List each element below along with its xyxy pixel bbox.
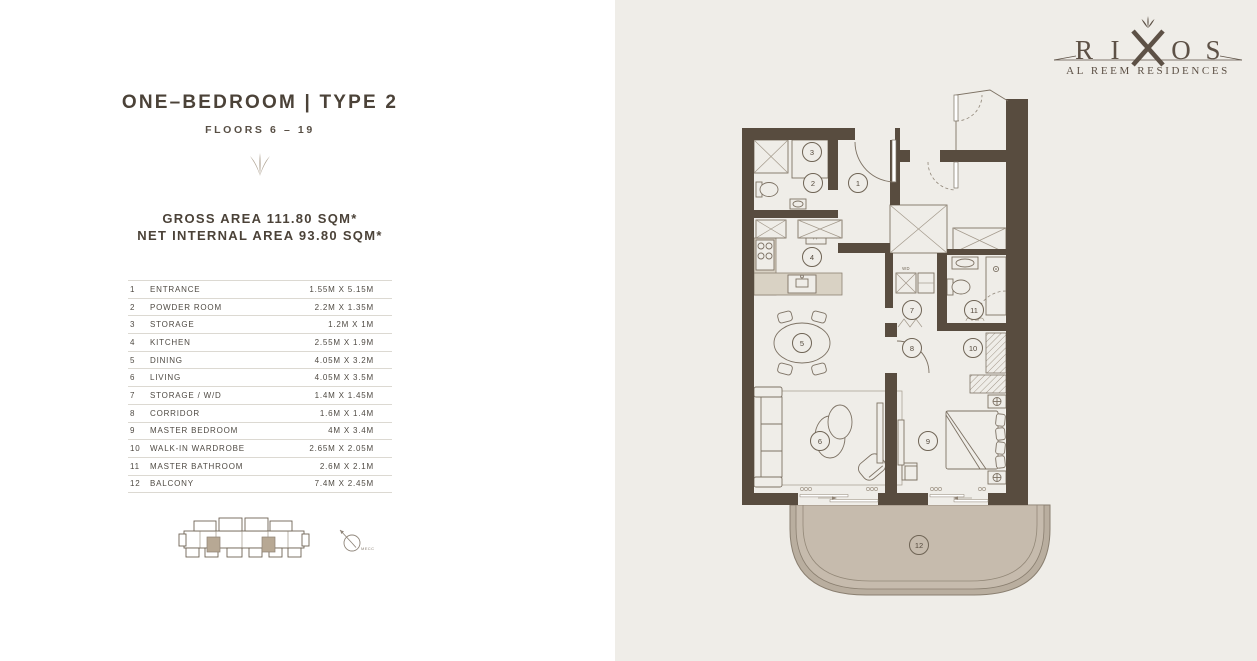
table-row: 2POWDER ROOM2.2M X 1.35M bbox=[128, 298, 392, 316]
table-row: 11MASTER BATHROOM2.6M X 2.1M bbox=[128, 457, 392, 475]
kitchen: FF bbox=[754, 231, 842, 295]
page: { "brand": { "letters": ["R", "I", "O", … bbox=[0, 0, 1257, 661]
compass-icon: MECCA bbox=[332, 524, 374, 558]
svg-text:2: 2 bbox=[811, 179, 815, 188]
room-name: BALCONY bbox=[150, 479, 315, 488]
table-row: 12BALCONY7.4M X 2.45M bbox=[128, 475, 392, 494]
bed bbox=[946, 411, 998, 469]
powder-sink bbox=[790, 199, 806, 209]
lobby bbox=[928, 90, 1008, 190]
room-no: 9 bbox=[128, 426, 150, 435]
sofa bbox=[754, 387, 782, 487]
svg-text:R: R bbox=[1075, 35, 1093, 65]
table-row: 3STORAGE1.2M X 1M bbox=[128, 315, 392, 333]
shower bbox=[986, 257, 1006, 315]
table-row: 5DINING4.05M X 3.2M bbox=[128, 351, 392, 369]
toilet bbox=[952, 280, 970, 294]
unit-floors: FLOORS 6 – 19 bbox=[128, 124, 392, 136]
elevator-shaft bbox=[890, 205, 947, 253]
svg-text:I: I bbox=[1111, 35, 1120, 65]
room-no: 2 bbox=[128, 303, 150, 312]
room-no: 8 bbox=[128, 409, 150, 418]
table-row: 1ENTRANCE1.55M X 5.15M bbox=[128, 280, 392, 298]
room-no: 5 bbox=[128, 356, 150, 365]
bifold-door bbox=[898, 319, 922, 327]
room-dims: 4M X 3.4M bbox=[328, 426, 392, 435]
building-key-plan bbox=[178, 512, 310, 568]
svg-text:9: 9 bbox=[926, 437, 930, 446]
room-dims: 1.4M X 1.45M bbox=[315, 391, 392, 400]
room-name: WALK-IN WARDROBE bbox=[150, 444, 309, 453]
tulip-divider-icon bbox=[249, 153, 271, 177]
room-dims: 7.4M X 2.45M bbox=[315, 479, 392, 488]
room-no: 1 bbox=[128, 285, 150, 294]
room-name: POWDER ROOM bbox=[150, 303, 315, 312]
svg-text:12: 12 bbox=[915, 541, 923, 550]
room-no: 6 bbox=[128, 373, 150, 382]
room-marker-3: 3 bbox=[803, 143, 822, 162]
room-no: 11 bbox=[128, 462, 150, 471]
svg-text:O: O bbox=[1171, 35, 1191, 65]
master-bedroom bbox=[898, 395, 1006, 484]
brand-x-tulip-icon bbox=[1133, 16, 1163, 65]
corridor-door-arc bbox=[928, 162, 956, 190]
room-marker-10: 10 bbox=[964, 339, 983, 358]
table-row: 10WALK-IN WARDROBE2.65M X 2.05M bbox=[128, 439, 392, 457]
room-no: 10 bbox=[128, 444, 150, 453]
brand-logo: R I O S AL REEM RESIDENCES bbox=[1052, 16, 1244, 78]
svg-text:6: 6 bbox=[818, 437, 822, 446]
side-table bbox=[828, 405, 852, 439]
table-row: 6LIVING4.05M X 3.5M bbox=[128, 368, 392, 386]
room-name: DINING bbox=[150, 356, 315, 365]
armchair bbox=[856, 451, 889, 483]
room-name: CORRIDOR bbox=[150, 409, 320, 418]
room-marker-4: 4 bbox=[803, 248, 822, 267]
room-dims: 4.05M X 3.2M bbox=[315, 356, 392, 365]
room-dims: 4.05M X 3.5M bbox=[315, 373, 392, 382]
table-row: 9MASTER BEDROOM4M X 3.4M bbox=[128, 422, 392, 440]
room-table: 1ENTRANCE1.55M X 5.15M 2POWDER ROOM2.2M … bbox=[128, 280, 392, 493]
net-area: NET INTERNAL AREA 93.80 SQM* bbox=[108, 228, 412, 245]
room-name: STORAGE / W/D bbox=[150, 391, 315, 400]
floor-plan: FF bbox=[740, 85, 1060, 600]
room-name: MASTER BEDROOM bbox=[150, 426, 328, 435]
room-name: MASTER BATHROOM bbox=[150, 462, 320, 471]
svg-text:3: 3 bbox=[810, 148, 814, 157]
room-dims: 1.2M X 1M bbox=[328, 320, 392, 329]
lobby-door-arc bbox=[956, 95, 982, 121]
room-name: KITCHEN bbox=[150, 338, 315, 347]
bench bbox=[902, 463, 917, 480]
svg-text:5: 5 bbox=[800, 339, 804, 348]
room-no: 7 bbox=[128, 391, 150, 400]
svg-text:S: S bbox=[1205, 35, 1220, 65]
room-marker-9: 9 bbox=[919, 432, 938, 451]
tv-cabinet bbox=[898, 420, 904, 465]
table-row: 4KITCHEN2.55M X 1.9M bbox=[128, 333, 392, 351]
svg-text:10: 10 bbox=[969, 344, 977, 353]
room-marker-5: 5 bbox=[793, 334, 812, 353]
door-leaf bbox=[954, 95, 958, 121]
room-dims: 2.55M X 1.9M bbox=[315, 338, 392, 347]
brand-subtitle: AL REEM RESIDENCES bbox=[1066, 65, 1230, 77]
washer-label: WD bbox=[902, 266, 910, 271]
table-row: 8CORRIDOR1.6M X 1.4M bbox=[128, 404, 392, 422]
room-no: 12 bbox=[128, 479, 150, 488]
room-no: 4 bbox=[128, 338, 150, 347]
svg-text:1: 1 bbox=[856, 179, 860, 188]
room-dims: 2.2M X 1.35M bbox=[315, 303, 392, 312]
room-dims: 1.6M X 1.4M bbox=[320, 409, 392, 418]
table-row: 7STORAGE / W/D1.4M X 1.45M bbox=[128, 386, 392, 404]
area-summary: GROSS AREA 111.80 SQM* NET INTERNAL AREA… bbox=[108, 211, 412, 244]
room-name: STORAGE bbox=[150, 320, 328, 329]
room-marker-6: 6 bbox=[811, 432, 830, 451]
tv-console bbox=[877, 403, 883, 463]
entrance-door-leaf bbox=[892, 140, 896, 182]
svg-text:11: 11 bbox=[970, 306, 978, 315]
room-marker-11: 11 bbox=[965, 301, 984, 320]
room-name: LIVING bbox=[150, 373, 315, 382]
room-marker-8: 8 bbox=[903, 339, 922, 358]
room-marker-2: 2 bbox=[804, 174, 823, 193]
room-dims: 2.6M X 2.1M bbox=[320, 462, 392, 471]
door-leaf bbox=[954, 162, 958, 188]
room-name: ENTRANCE bbox=[150, 285, 309, 294]
svg-text:4: 4 bbox=[810, 253, 814, 262]
svg-text:8: 8 bbox=[910, 344, 914, 353]
svg-text:7: 7 bbox=[910, 306, 914, 315]
compass-label: MECCA bbox=[361, 546, 374, 551]
room-dims: 1.55M X 5.15M bbox=[309, 285, 392, 294]
room-marker-7: 7 bbox=[903, 301, 922, 320]
powder-room bbox=[756, 182, 806, 209]
unit-title: ONE–BEDROOM | TYPE 2 bbox=[118, 92, 402, 114]
room-marker-1: 1 bbox=[849, 174, 868, 193]
room-no: 3 bbox=[128, 320, 150, 329]
balcony bbox=[790, 505, 1050, 595]
toilet bbox=[760, 183, 778, 197]
gross-area: GROSS AREA 111.80 SQM* bbox=[108, 211, 412, 228]
room-dims: 2.65M X 2.05M bbox=[309, 444, 392, 453]
